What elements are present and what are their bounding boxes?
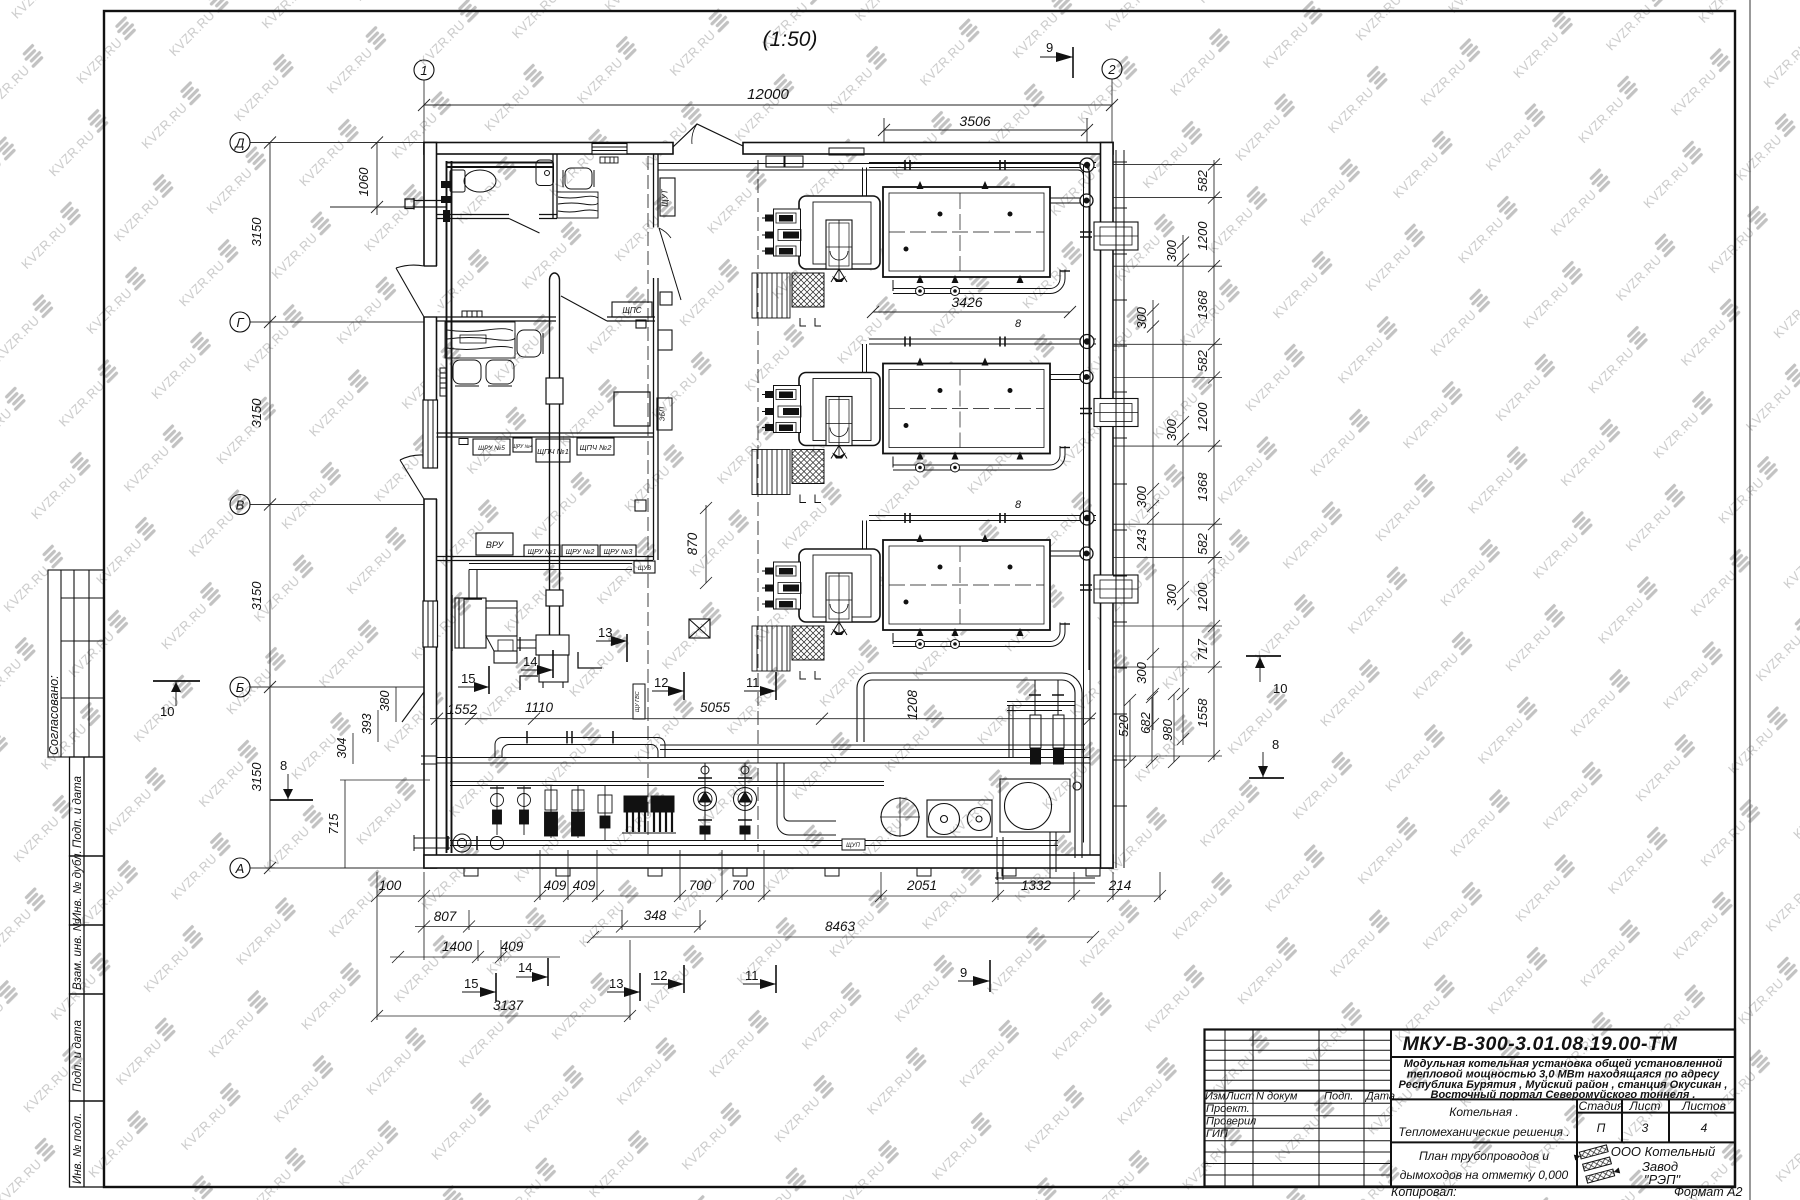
svg-text:9: 9 [1046, 40, 1053, 55]
svg-text:Дата: Дата [1364, 1091, 1395, 1103]
svg-text:ООО Котельный: ООО Котельный [1611, 1144, 1716, 1159]
svg-text:ЩПЧ №2: ЩПЧ №2 [580, 443, 613, 452]
svg-text:1208: 1208 [905, 689, 920, 720]
svg-text:807: 807 [434, 909, 457, 924]
svg-text:План трубопроводов и: План трубопроводов и [1419, 1149, 1549, 1163]
svg-text:13: 13 [598, 625, 612, 640]
svg-text:дымоходов на отметку 0,000: дымоходов на отметку 0,000 [1400, 1168, 1569, 1182]
svg-text:409: 409 [544, 878, 567, 893]
svg-text:14: 14 [523, 654, 537, 669]
svg-text:1: 1 [420, 63, 427, 78]
svg-text:Котельная .: Котельная . [1449, 1105, 1518, 1119]
svg-text:ВРУ: ВРУ [486, 540, 505, 550]
svg-text:12: 12 [653, 968, 667, 983]
svg-text:2051: 2051 [906, 878, 937, 893]
svg-text:3: 3 [1642, 1121, 1649, 1135]
svg-text:Изм: Изм [1205, 1091, 1226, 1103]
svg-text:А: А [235, 861, 245, 876]
svg-text:Инв. № дубл.: Инв. № дубл. [72, 850, 84, 921]
svg-text:ЩПС: ЩПС [623, 306, 642, 315]
svg-text:13: 13 [609, 976, 623, 991]
svg-text:3150: 3150 [249, 217, 264, 247]
svg-text:700: 700 [689, 878, 712, 893]
svg-text:Взам. инв. №: Взам. инв. № [72, 918, 84, 990]
svg-text:380: 380 [378, 691, 392, 712]
svg-text:9: 9 [960, 965, 967, 980]
svg-text:582: 582 [1195, 532, 1210, 554]
svg-text:Согласовано:: Согласовано: [47, 675, 61, 755]
svg-text:300: 300 [1164, 583, 1179, 605]
svg-text:8463: 8463 [825, 919, 856, 934]
svg-text:8: 8 [1272, 737, 1279, 752]
svg-text:(1:50): (1:50) [763, 28, 818, 51]
svg-text:ГИП: ГИП [1206, 1128, 1228, 1140]
svg-text:Лист: Лист [1225, 1091, 1254, 1103]
svg-text:8: 8 [280, 758, 287, 773]
svg-text:393: 393 [360, 714, 374, 735]
svg-text:1060: 1060 [356, 167, 371, 197]
svg-text:300: 300 [1134, 485, 1149, 507]
svg-text:1368: 1368 [1195, 472, 1210, 502]
svg-text:14: 14 [518, 960, 532, 975]
svg-text:304: 304 [335, 738, 349, 759]
svg-text:5055: 5055 [700, 700, 731, 715]
svg-text:1558: 1558 [1195, 698, 1210, 728]
svg-text:582: 582 [1195, 349, 1210, 371]
svg-text:ЩУВ: ЩУВ [638, 566, 651, 572]
svg-text:300: 300 [1134, 306, 1149, 328]
svg-text:980: 980 [1160, 718, 1175, 740]
svg-text:N докум: N докум [1256, 1091, 1298, 1103]
svg-text:1110: 1110 [525, 700, 554, 715]
svg-text:1368: 1368 [1195, 290, 1210, 320]
svg-text:Проверил: Проверил [1206, 1116, 1256, 1128]
svg-text:300: 300 [1134, 661, 1149, 683]
svg-text:ЩУТ: ЩУТ [661, 188, 670, 206]
svg-text:ЩРУ №4: ЩРУ №4 [512, 444, 533, 450]
svg-text:1200: 1200 [1195, 402, 1210, 432]
svg-text:1400: 1400 [442, 939, 473, 954]
svg-text:12: 12 [654, 675, 668, 690]
svg-text:Копировал:: Копировал: [1391, 1185, 1457, 1199]
svg-text:1200: 1200 [1195, 221, 1210, 251]
svg-text:100: 100 [379, 878, 402, 893]
svg-text:4: 4 [1701, 1121, 1708, 1135]
svg-text:3137: 3137 [493, 998, 524, 1013]
svg-text:ЩРУ №3: ЩРУ №3 [604, 549, 633, 556]
svg-text:409: 409 [573, 878, 596, 893]
svg-text:715: 715 [327, 814, 341, 835]
svg-text:ЩРУ №5: ЩРУ №5 [478, 445, 505, 452]
svg-text:243: 243 [1134, 528, 1149, 551]
svg-text:ЩРУ №2: ЩРУ №2 [566, 549, 595, 556]
svg-text:682: 682 [1138, 711, 1153, 733]
svg-text:409: 409 [501, 939, 524, 954]
svg-text:717: 717 [1195, 638, 1210, 660]
svg-text:МКУ-В-300-3.01.08.19.00-ТМ: МКУ-В-300-3.01.08.19.00-ТМ [1403, 1033, 1678, 1055]
svg-text:Подп. и дата: Подп. и дата [72, 776, 84, 848]
svg-text:11: 11 [745, 968, 759, 983]
svg-text:ЩРУ №1: ЩРУ №1 [528, 549, 557, 556]
svg-text:3426: 3426 [951, 294, 982, 310]
svg-text:3506: 3506 [959, 113, 990, 129]
svg-text:Подп. и дата: Подп. и дата [72, 1020, 84, 1092]
svg-text:Стадия: Стадия [1579, 1099, 1625, 1113]
svg-text:2: 2 [1107, 62, 1116, 77]
svg-text:В: В [236, 498, 245, 513]
svg-text:10: 10 [160, 704, 174, 719]
svg-text:Лист: Лист [1629, 1099, 1661, 1113]
svg-text:520: 520 [1116, 714, 1131, 736]
svg-text:Листов: Листов [1681, 1099, 1726, 1113]
svg-text:3150: 3150 [249, 581, 264, 611]
svg-text:582: 582 [1195, 169, 1210, 191]
svg-text:П: П [1597, 1121, 1606, 1135]
svg-text:Д: Д [233, 136, 244, 151]
svg-text:214: 214 [1108, 878, 1132, 893]
svg-text:15: 15 [461, 671, 475, 686]
svg-text:1200: 1200 [1195, 582, 1210, 612]
svg-text:700: 700 [732, 878, 755, 893]
svg-text:Инв. № подл.: Инв. № подл. [72, 1113, 84, 1184]
svg-text:15: 15 [464, 976, 478, 991]
svg-text:3150: 3150 [249, 398, 264, 428]
svg-text:Б: Б [236, 680, 245, 695]
svg-text:348: 348 [644, 908, 667, 923]
svg-text:Проект.: Проект. [1206, 1103, 1250, 1115]
svg-text:300: 300 [1164, 239, 1179, 261]
svg-text:3150: 3150 [249, 762, 264, 792]
svg-text:10: 10 [1273, 681, 1287, 696]
svg-text:ЭБП: ЭБП [660, 406, 667, 421]
svg-text:1552: 1552 [447, 702, 478, 717]
svg-text:11: 11 [746, 675, 760, 690]
svg-text:ЩПЧ №1: ЩПЧ №1 [537, 447, 569, 456]
svg-text:ЩУП: ЩУП [846, 843, 860, 849]
svg-text:Г: Г [236, 315, 244, 330]
svg-text:300: 300 [1164, 418, 1179, 440]
svg-text:870: 870 [685, 532, 700, 555]
svg-text:1332: 1332 [1021, 878, 1052, 893]
svg-text:Тепломеханические решения .: Тепломеханические решения . [1398, 1125, 1569, 1139]
svg-text:ЩУ ГВС: ЩУ ГВС [635, 691, 641, 712]
svg-text:8: 8 [1015, 499, 1022, 511]
svg-text:Подп.: Подп. [1324, 1091, 1353, 1103]
svg-text:8: 8 [1015, 318, 1022, 330]
svg-text:12000: 12000 [747, 86, 789, 103]
svg-text:Формат А2: Формат А2 [1674, 1185, 1742, 1199]
